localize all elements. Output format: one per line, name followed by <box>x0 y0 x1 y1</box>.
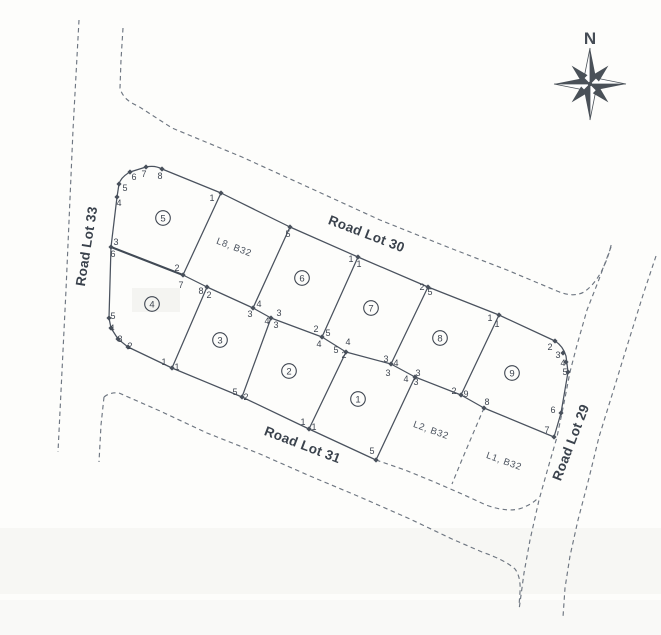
survey-point-markers <box>106 164 570 462</box>
vertex-number-label: 5 <box>285 229 290 239</box>
subdivision-plat-page: 6785436127825433431125445225343113432345… <box>0 0 661 635</box>
lot-number-text: 3 <box>217 335 222 346</box>
vertex-number-label: 5 <box>122 183 127 193</box>
compass-north-label: N <box>584 29 596 48</box>
vertex-number-label: 6 <box>110 249 115 259</box>
vertex-number-label: 2 <box>174 263 179 273</box>
vertex-number-label: 3 <box>247 309 252 319</box>
scan-artifact-box <box>132 288 180 312</box>
vertex-number-label: 4 <box>345 337 350 347</box>
road-lot-30-north-edge <box>120 28 612 295</box>
vertex-number-label: 5 <box>562 367 567 377</box>
lot-number-text: 9 <box>509 368 514 379</box>
vertex-number-labels: 6785436127825433431125445225343113432345… <box>109 169 567 456</box>
vertex-number-label: 3 <box>385 368 390 378</box>
road-lot-33-east-edge-south <box>99 397 104 462</box>
vertex-number-label: 9 <box>463 389 468 399</box>
lot-number-text: 5 <box>160 213 165 224</box>
vertex-number-label: 3 <box>276 308 281 318</box>
parcel-labels: L8, B32L2, B32L1, B32 <box>215 236 523 473</box>
vertex-number-label: 2 <box>547 342 552 352</box>
vertex-number-label: 5 <box>325 328 330 338</box>
divider-l8-lot6 <box>253 227 290 308</box>
vertex-number-label: 2 <box>313 324 318 334</box>
vertex-number-label: 4 <box>116 198 121 208</box>
vertex-number-label: 2 <box>419 282 424 292</box>
vertex-number-label: 8 <box>198 286 203 296</box>
vertex-number-label: 4 <box>109 323 114 333</box>
vertex-number-label: 2 <box>206 290 211 300</box>
vertex-number-label: 5 <box>427 287 432 297</box>
road-label: Road Lot 33 <box>73 205 100 287</box>
vertex-number-label: 8 <box>157 171 162 181</box>
vertex-number-label: 5 <box>232 387 237 397</box>
divider-lot2-lot1 <box>309 352 346 429</box>
road-dashed-lines <box>58 20 656 617</box>
survey-point-marker <box>116 181 121 186</box>
survey-point-marker <box>373 457 378 462</box>
vertex-number-label: 4 <box>256 299 261 309</box>
survey-point-marker <box>204 284 209 289</box>
parcel-label: L2, B32 <box>412 419 450 442</box>
vertex-number-label: 3 <box>273 320 278 330</box>
block-northeast-corner <box>499 315 568 372</box>
vertex-number-label: 1 <box>300 417 305 427</box>
vertex-number-label: 5 <box>110 311 115 321</box>
vertex-number-label: 3 <box>413 377 418 387</box>
vertex-number-label: 1 <box>356 259 361 269</box>
lot-number-circles: 123456789 <box>145 211 520 407</box>
lot-number-text: 7 <box>368 303 373 314</box>
compass-rose-icon: N <box>554 29 626 120</box>
vertex-number-label: 4 <box>264 316 269 326</box>
parcel-l1-l2-boundary <box>452 408 484 484</box>
vertex-number-label: 4 <box>403 374 408 384</box>
vertex-number-label: 3 <box>117 334 122 344</box>
divider-lot1-l2 <box>376 377 415 460</box>
survey-point-marker <box>496 312 501 317</box>
vertex-number-label: 1 <box>174 362 179 372</box>
lot-number-text: 4 <box>149 299 154 310</box>
vertex-number-label: 1 <box>161 357 166 367</box>
block-east-edge <box>554 372 568 437</box>
block-south-edge <box>109 318 376 460</box>
lot-number-text: 2 <box>286 366 291 377</box>
vertex-number-label: 1 <box>209 193 214 203</box>
vertex-number-label: 1 <box>311 422 316 432</box>
divider-lot8-lot9 <box>461 315 499 395</box>
vertex-number-label: 3 <box>113 237 118 247</box>
vertex-number-label: 2 <box>127 341 132 351</box>
survey-point-marker <box>551 434 556 439</box>
vertex-number-label: 2 <box>243 392 248 402</box>
vertex-number-label: 6 <box>131 172 136 182</box>
lot5-lot4-shared-line <box>111 247 183 275</box>
lot-number-text: 8 <box>437 333 442 344</box>
vertex-number-label: 7 <box>544 425 549 435</box>
survey-point-marker <box>560 350 565 355</box>
block-middle-line <box>111 247 554 437</box>
parcel-label: L1, B32 <box>485 450 523 473</box>
vertex-number-label: 2 <box>341 350 346 360</box>
vertex-number-label: 7 <box>178 280 183 290</box>
vertex-number-label: 5 <box>333 345 338 355</box>
road-lot-33-west-edge <box>58 20 79 452</box>
divider-lot3-lot2 <box>242 318 271 397</box>
parcel-label: L8, B32 <box>215 236 253 260</box>
divider-lot7-lot8 <box>391 287 428 364</box>
vertex-number-label: 4 <box>393 358 398 368</box>
vertex-number-label: 6 <box>550 405 555 415</box>
divider-lot6-lot7 <box>322 257 358 337</box>
vertex-number-label: 3 <box>383 354 388 364</box>
vertex-number-label: 2 <box>451 386 456 396</box>
vertex-number-label: 8 <box>484 397 489 407</box>
vertex-number-label: 1 <box>494 319 499 329</box>
survey-point-marker <box>218 190 223 195</box>
vertex-number-label: 1 <box>487 313 492 323</box>
vertex-number-label: 7 <box>141 169 146 179</box>
vertex-number-label: 5 <box>369 446 374 456</box>
lot-number-text: 1 <box>355 394 360 405</box>
vertex-number-label: 4 <box>316 339 321 349</box>
vertex-number-label: 1 <box>348 254 353 264</box>
lot-number-text: 6 <box>299 273 304 284</box>
subdivision-plat-map: 6785436127825433431125445225343113432345… <box>0 0 661 635</box>
block-north-edge <box>221 193 499 315</box>
divider-lot5-l8 <box>183 193 221 275</box>
